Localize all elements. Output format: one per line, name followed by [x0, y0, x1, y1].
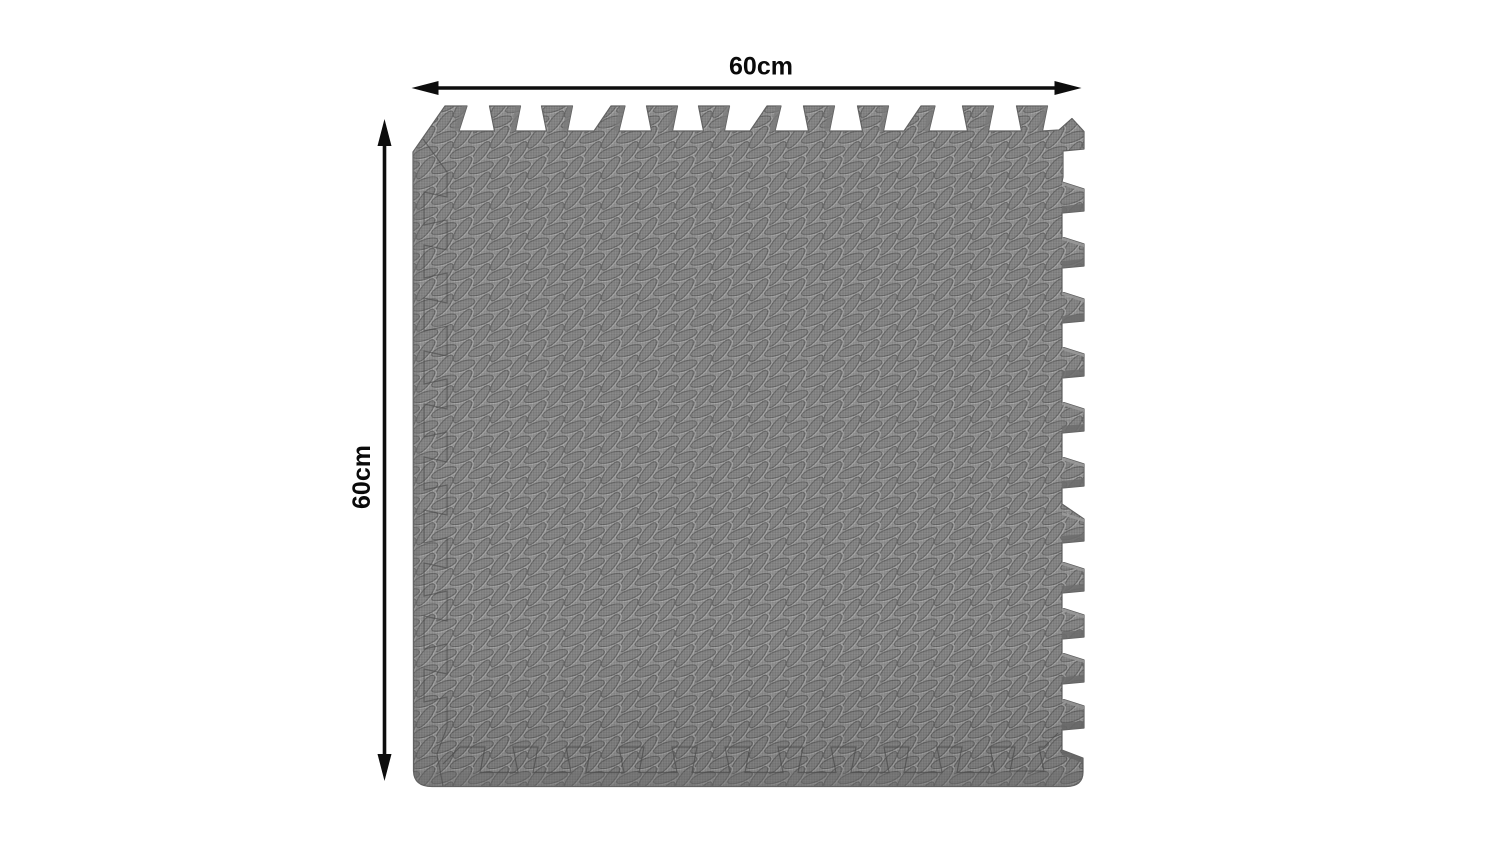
- svg-text:60cm: 60cm: [348, 445, 376, 509]
- svg-text:60cm: 60cm: [729, 53, 793, 81]
